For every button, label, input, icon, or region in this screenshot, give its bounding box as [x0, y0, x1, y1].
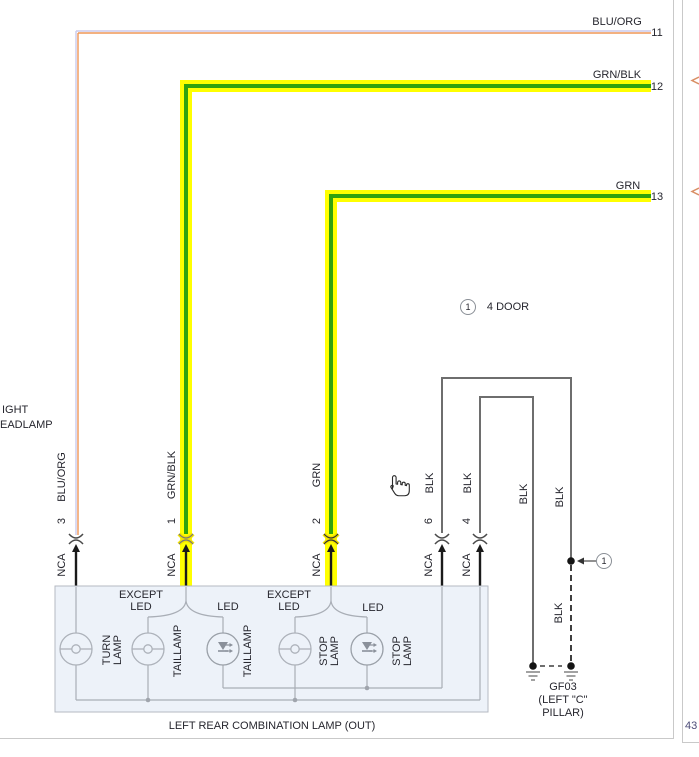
component-title: LEFT REAR COMBINATION LAMP (OUT)	[169, 720, 376, 732]
wire-grn	[325, 190, 651, 587]
inline-connector-pin3	[69, 534, 83, 544]
v-label-blk-inner: BLK	[518, 484, 530, 505]
splice-dot	[567, 557, 575, 565]
pin-6: 6	[423, 518, 435, 524]
group-except-led-stop: EXCEPT LED	[267, 589, 311, 613]
wire-label-grn-row: GRN	[616, 180, 640, 192]
note-circle-1: 1	[460, 299, 476, 315]
wire-label-grn-blk-row: GRN/BLK	[593, 69, 641, 81]
diagram-viewport: { "colors": { "highlight_yellow": "#ffff…	[0, 0, 699, 757]
adjacent-page-number: 43	[685, 720, 697, 732]
label-stop-lamp-led: STOP LAMP	[392, 636, 414, 666]
left-note-line2: EADLAMP	[0, 418, 53, 433]
nca-label-pin3: NCA	[56, 553, 68, 576]
note-4-door: 4 DOOR	[487, 301, 529, 313]
ground-location-line2: PILLAR)	[538, 707, 587, 720]
inline-connector-pin4	[473, 534, 487, 544]
label-taillamp-led: TAILLAMP	[242, 625, 254, 677]
group-except-led-tail: EXCEPT LED	[119, 589, 163, 613]
group-led-stop: LED	[362, 602, 383, 614]
v-label-blu-org: BLU/ORG	[56, 452, 68, 502]
callout-arrow	[577, 558, 596, 565]
pin-3: 3	[56, 518, 68, 524]
ground-id: GF03	[538, 681, 587, 694]
pin-1: 1	[166, 518, 178, 524]
nca-label-pin2: NCA	[311, 553, 323, 576]
label-taillamp-bulb: TAILLAMP	[172, 625, 184, 677]
wire-grn-blk	[180, 80, 651, 587]
left-note-right-headlamp: IGHT EADLAMP	[0, 403, 53, 433]
label-turn-lamp: TURN LAMP	[102, 635, 124, 666]
callout-circle-1: 1	[596, 553, 612, 569]
hand-cursor-icon	[391, 476, 409, 496]
ground-symbol-right	[564, 662, 578, 680]
inline-connector-pin6	[435, 534, 449, 544]
ground-location-line1: (LEFT "C"	[538, 694, 587, 707]
left-note-line1: IGHT	[0, 403, 53, 418]
row-number-13: 13	[651, 191, 663, 203]
wire-blk-pin6	[442, 378, 571, 562]
label-stop-lamp-bulb: STOP LAMP	[319, 636, 341, 666]
v-label-blk-pin6: BLK	[424, 473, 436, 494]
nca-label-pin6: NCA	[423, 553, 435, 576]
v-label-grn: GRN	[311, 463, 323, 487]
pin-4: 4	[461, 518, 473, 524]
row-number-12: 12	[651, 81, 663, 93]
ground-id-block: GF03 (LEFT "C" PILLAR)	[538, 681, 587, 720]
wire-blu-org	[76, 31, 651, 535]
nca-label-pin4: NCA	[461, 553, 473, 576]
nca-label-pin1: NCA	[166, 553, 178, 576]
ground-symbol-left	[526, 662, 540, 680]
v-label-blk-pin4: BLK	[462, 473, 474, 494]
adjacent-page-wire-stubs	[692, 77, 699, 195]
v-label-blk-dashed: BLK	[553, 603, 565, 624]
group-led-tail: LED	[217, 601, 238, 613]
wire-label-blu-org-row: BLU/ORG	[592, 16, 642, 28]
v-label-grn-blk: GRN/BLK	[166, 451, 178, 499]
pin-2: 2	[311, 518, 323, 524]
v-label-blk-outer: BLK	[554, 487, 566, 508]
row-number-11: 11	[651, 27, 662, 39]
